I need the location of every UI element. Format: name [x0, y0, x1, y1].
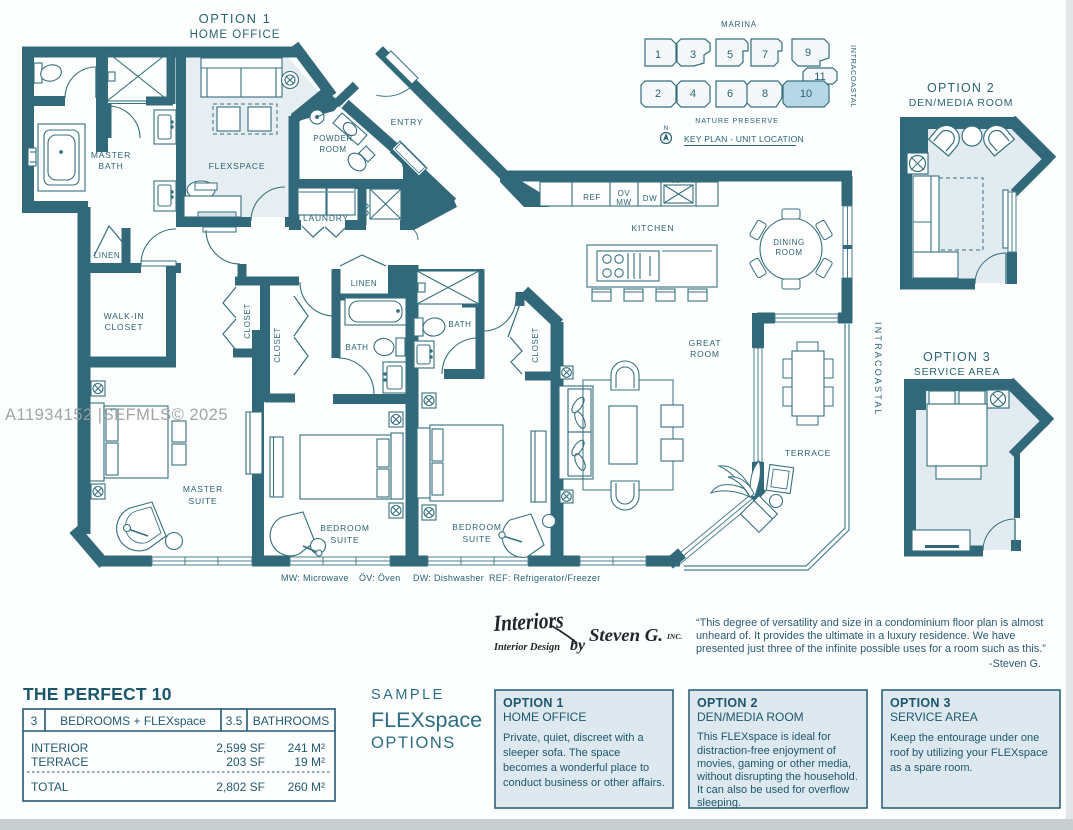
svg-text:DW: DW: [643, 194, 658, 203]
svg-text:-Steven G.: -Steven G.: [989, 658, 1041, 670]
svg-text:BEDROOM: BEDROOM: [320, 523, 370, 533]
svg-text:10: 10: [800, 88, 812, 100]
svg-text:DEN/MEDIA ROOM: DEN/MEDIA ROOM: [697, 710, 804, 724]
svg-text:TERRACE: TERRACE: [31, 755, 88, 769]
svg-text:DINING: DINING: [773, 238, 805, 247]
svg-text:2,599 SF: 2,599 SF: [216, 741, 265, 755]
svg-text:INTERIOR: INTERIOR: [31, 741, 89, 755]
svg-text:as a spare room.: as a spare room.: [890, 762, 973, 774]
svg-text:movies, gaming or other media,: movies, gaming or other media,: [697, 758, 851, 770]
svg-text:3: 3: [31, 714, 38, 728]
svg-text:GREAT: GREAT: [689, 338, 722, 348]
svg-text:OPTIONS: OPTIONS: [371, 734, 456, 752]
svg-text:KITCHEN: KITCHEN: [632, 223, 675, 233]
svg-text:ENTRY: ENTRY: [391, 117, 424, 127]
svg-text:3.5: 3.5: [226, 714, 243, 728]
svg-text:KEY PLAN - UNIT LOCATION: KEY PLAN - UNIT LOCATION: [684, 134, 804, 144]
svg-text:HOME OFFICE: HOME OFFICE: [503, 710, 586, 724]
svg-text:CLOSET: CLOSET: [105, 322, 144, 332]
svg-text:roof by utilizing your FLEXspa: roof by utilizing your FLEXspace: [890, 747, 1048, 759]
svg-text:MW: Microwave: MW: Microwave: [281, 573, 349, 583]
svg-text:OPTION 2: OPTION 2: [697, 696, 758, 710]
svg-text:BEDROOM: BEDROOM: [452, 522, 502, 532]
svg-text:SUITE: SUITE: [330, 535, 359, 545]
svg-text:HOME OFFICE: HOME OFFICE: [190, 29, 281, 41]
svg-text:LAUNDRY: LAUNDRY: [303, 213, 349, 223]
svg-text:Steven G.: Steven G.: [589, 625, 663, 645]
svg-text:INTRACOASTAL: INTRACOASTAL: [849, 45, 858, 108]
svg-text:“This degree of versatility an: “This degree of versatility and size in …: [696, 617, 1043, 629]
svg-text:MASTER: MASTER: [91, 150, 131, 160]
svg-text:OPTION 2: OPTION 2: [927, 81, 995, 95]
svg-text:OPTION 1: OPTION 1: [199, 11, 272, 26]
svg-text:presented just three of the in: presented just three of the infinite pos…: [696, 643, 1046, 655]
svg-text:8: 8: [762, 88, 768, 100]
svg-text:It can also be used for overfl: It can also be used for overflow: [697, 784, 849, 796]
svg-text:SUITE: SUITE: [462, 534, 491, 544]
svg-text:BATH: BATH: [98, 161, 123, 171]
svg-text:SERVICE AREA: SERVICE AREA: [890, 710, 978, 724]
svg-text:POWDER: POWDER: [313, 134, 353, 143]
svg-text:2: 2: [655, 88, 661, 100]
svg-text:ROOM: ROOM: [775, 248, 802, 257]
svg-text:DEN/MEDIA ROOM: DEN/MEDIA ROOM: [909, 97, 1014, 109]
svg-text:INC.: INC.: [666, 632, 682, 641]
svg-text:sleeper sofa. The space: sleeper sofa. The space: [503, 747, 620, 759]
svg-text:CLOSET: CLOSET: [243, 303, 252, 339]
svg-text:ROOM: ROOM: [690, 349, 720, 359]
svg-text:BATHROOMS: BATHROOMS: [253, 714, 329, 728]
svg-text:4: 4: [690, 88, 696, 100]
svg-text:MASTER: MASTER: [183, 484, 223, 494]
svg-text:CLOSET: CLOSET: [273, 327, 282, 363]
svg-text:DW: Dishwasher: DW: Dishwasher: [413, 573, 484, 583]
svg-text:NATURE PRESERVE: NATURE PRESERVE: [695, 116, 779, 125]
svg-text:FLEXspace: FLEXspace: [371, 708, 482, 732]
svg-text:TERRACE: TERRACE: [785, 448, 831, 458]
svg-text:N: N: [664, 125, 669, 132]
svg-text:19 M²: 19 M²: [294, 755, 325, 769]
svg-text:7: 7: [762, 49, 768, 61]
svg-text:11: 11: [814, 71, 825, 83]
svg-text:unheard of. It provides the ul: unheard of. It provides the ultimate in …: [696, 630, 1015, 642]
svg-text:TOTAL: TOTAL: [31, 780, 69, 794]
svg-text:MARINA: MARINA: [721, 20, 757, 29]
svg-text:5: 5: [727, 49, 733, 61]
svg-text:SAMPLE: SAMPLE: [371, 687, 445, 703]
svg-text:OPTION 3: OPTION 3: [890, 696, 951, 710]
svg-text:sleeping.: sleeping.: [697, 797, 741, 809]
svg-text:OPTION 3: OPTION 3: [923, 350, 991, 364]
svg-text:2,802 SF: 2,802 SF: [216, 780, 265, 794]
svg-text:260 M²: 260 M²: [288, 780, 325, 794]
svg-text:BEDROOMS + FLEXspace: BEDROOMS + FLEXspace: [60, 714, 206, 728]
svg-text:241 M²: 241 M²: [288, 741, 325, 755]
svg-text:OPTION 1: OPTION 1: [503, 696, 564, 710]
svg-text:MW: MW: [616, 198, 631, 207]
svg-text:without disrupting the househo: without disrupting the household.: [696, 771, 858, 783]
svg-text:OV: OV: [618, 189, 631, 198]
svg-text:CLOSET: CLOSET: [531, 327, 540, 363]
svg-text:SERVICE AREA: SERVICE AREA: [914, 366, 1000, 378]
svg-text:ÖV: Öven: ÖV: Öven: [359, 573, 401, 583]
svg-text:Interior Design: Interior Design: [493, 641, 560, 653]
svg-text:FLEXSPACE: FLEXSPACE: [209, 161, 266, 171]
svg-text:becomes a wonderful place to: becomes a wonderful place to: [503, 762, 649, 774]
svg-text:LINEN: LINEN: [94, 251, 121, 260]
svg-text:LINEN: LINEN: [351, 279, 378, 288]
svg-text:Keep the entourage under one: Keep the entourage under one: [890, 732, 1039, 744]
svg-text:conduct business or other affa: conduct business or other affairs.: [503, 777, 665, 789]
svg-text:distraction-free enjoyment of: distraction-free enjoyment of: [697, 745, 837, 757]
svg-text:BATH: BATH: [345, 343, 368, 352]
svg-text:A11934152 |SEFMLS© 2025: A11934152 |SEFMLS© 2025: [5, 406, 228, 424]
svg-text:REF: REF: [583, 193, 601, 202]
svg-text:9: 9: [805, 47, 811, 59]
svg-text:ROOM: ROOM: [319, 145, 346, 154]
svg-text:by: by: [570, 637, 586, 654]
svg-text:6: 6: [727, 88, 733, 100]
svg-text:203 SF: 203 SF: [226, 755, 265, 769]
svg-text:THE PERFECT 10: THE PERFECT 10: [23, 684, 172, 704]
svg-text:Private, quiet, discreet with: Private, quiet, discreet with a: [503, 732, 645, 744]
svg-text:WALK-IN: WALK-IN: [104, 311, 145, 321]
svg-text:REF: Refrigerator/Freezer: REF: Refrigerator/Freezer: [489, 573, 601, 583]
svg-text:Interiors: Interiors: [492, 607, 564, 636]
svg-text:INTRACOASTAL: INTRACOASTAL: [873, 322, 883, 417]
svg-text:This FLEXspace is ideal for: This FLEXspace is ideal for: [697, 731, 831, 743]
svg-text:1: 1: [655, 49, 661, 61]
svg-text:SUITE: SUITE: [188, 496, 217, 506]
svg-text:BATH: BATH: [448, 320, 471, 329]
svg-text:3: 3: [690, 49, 696, 61]
